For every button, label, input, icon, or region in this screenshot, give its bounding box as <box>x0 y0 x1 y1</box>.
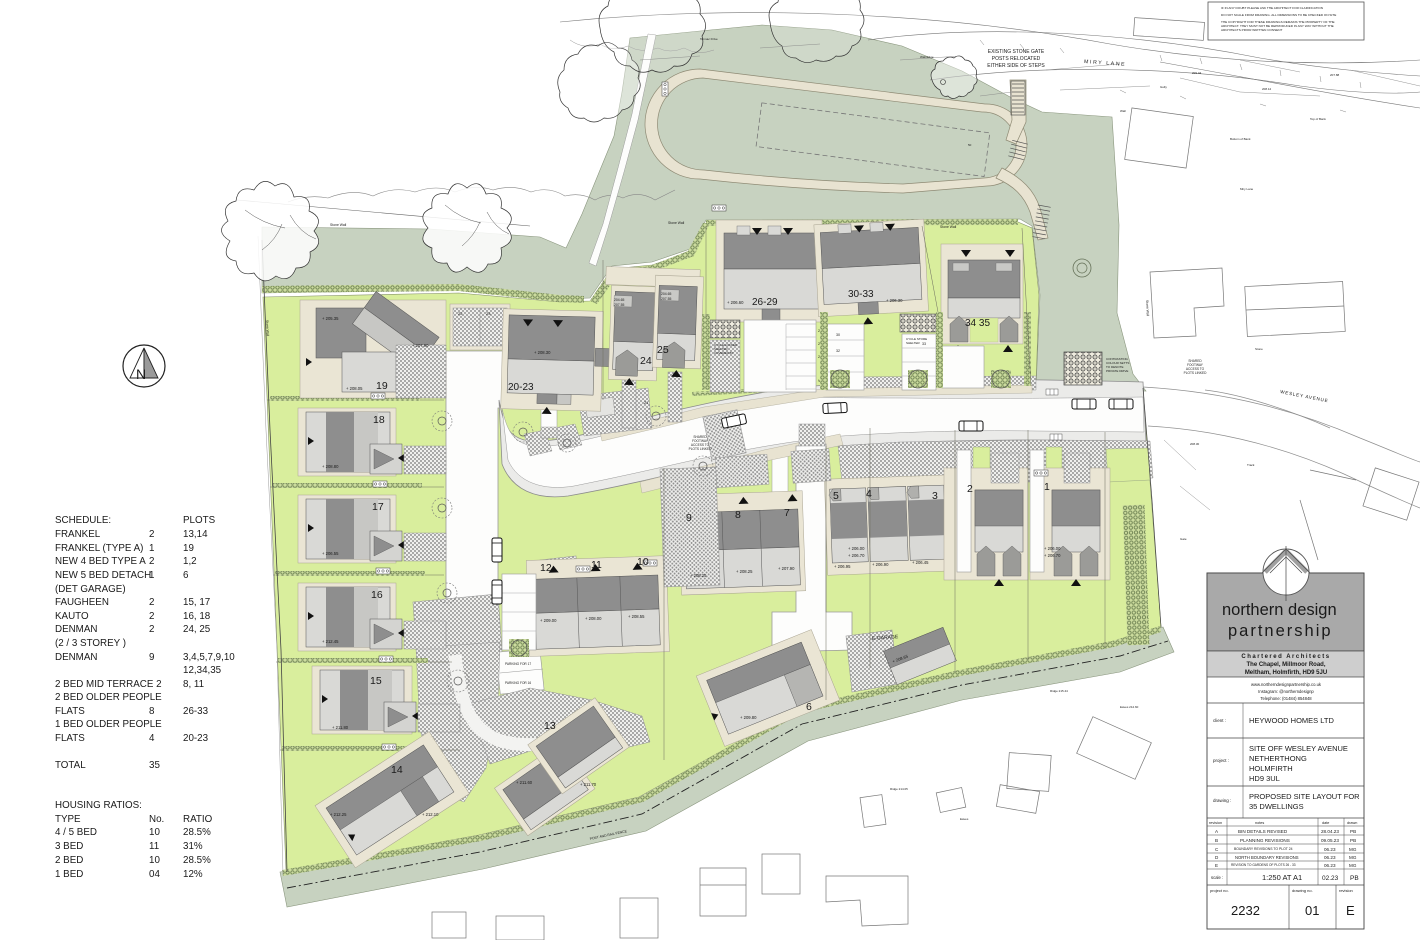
svg-text:NEW 5 BED DETACH: NEW 5 BED DETACH <box>55 570 151 581</box>
svg-text:1 BED: 1 BED <box>55 869 83 880</box>
svg-text:28.5%: 28.5% <box>183 855 211 866</box>
svg-text:+ 206.45: + 206.45 <box>912 560 929 565</box>
svg-text:Ridge 215.44: Ridge 215.44 <box>1050 689 1068 693</box>
svg-text:Gate: Gate <box>1180 537 1187 541</box>
svg-text:26-33: 26-33 <box>183 706 209 717</box>
svg-text:+ 209.00: + 209.00 <box>540 618 557 623</box>
svg-text:DENMAN: DENMAN <box>55 624 97 635</box>
svg-text:The Chapel, Millmoor Road,: The Chapel, Millmoor Road, <box>1246 662 1325 668</box>
svg-text:01: 01 <box>1305 903 1319 918</box>
svg-text:RATIO: RATIO <box>183 814 213 825</box>
svg-text:Stone Wall: Stone Wall <box>940 225 957 229</box>
svg-text:20-23: 20-23 <box>508 382 534 393</box>
svg-text:FLATS: FLATS <box>55 733 85 744</box>
svg-text:3,4,5,7,9,10: 3,4,5,7,9,10 <box>183 652 235 663</box>
svg-text:207.55: 207.55 <box>661 297 671 301</box>
svg-text:4 / 5 BED: 4 / 5 BED <box>55 827 97 838</box>
svg-text:13: 13 <box>544 720 556 732</box>
svg-text:No.: No. <box>149 814 164 825</box>
svg-text:PRIVATE DRIVE: PRIVATE DRIVE <box>1106 369 1128 373</box>
svg-text:30-33: 30-33 <box>848 289 874 300</box>
svg-text:204.65: 204.65 <box>661 292 671 296</box>
svg-text:HD9 3UL: HD9 3UL <box>1249 774 1280 783</box>
svg-text:PLOTS LINKED: PLOTS LINKED <box>1184 371 1208 375</box>
svg-text:Stone Wall: Stone Wall <box>668 221 685 225</box>
svg-text:PB: PB <box>1350 829 1356 834</box>
svg-text:28.04.23: 28.04.23 <box>1321 829 1339 834</box>
svg-text:+ 205.35: + 205.35 <box>322 316 339 321</box>
svg-text:10: 10 <box>149 855 160 866</box>
svg-text:PB: PB <box>1350 875 1359 882</box>
svg-text:partnership: partnership <box>1228 622 1333 640</box>
svg-text:+ 208.25: + 208.25 <box>690 573 707 578</box>
svg-text:HEYWOOD HOMES LTD: HEYWOOD HOMES LTD <box>1249 716 1334 725</box>
svg-text:BIN DETAILS REVISED: BIN DETAILS REVISED <box>1238 829 1288 834</box>
svg-text:12%: 12% <box>183 869 203 880</box>
svg-text:Meltham, Holmfirth, HD9 5JU: Meltham, Holmfirth, HD9 5JU <box>1245 670 1327 676</box>
svg-text:+ 212.10: + 212.10 <box>422 812 439 817</box>
svg-text:PB: PB <box>1350 838 1356 843</box>
svg-text:1:250 AT A1: 1:250 AT A1 <box>1262 873 1302 882</box>
svg-text:4: 4 <box>149 733 155 744</box>
svg-text:BOUNDARY REVISIONS TO PLOT 24: BOUNDARY REVISIONS TO PLOT 24 <box>1234 847 1293 851</box>
svg-text:revision: revision <box>1339 888 1353 893</box>
svg-text:10: 10 <box>637 556 649 568</box>
svg-text:KAUTO: KAUTO <box>55 611 89 622</box>
svg-text:35: 35 <box>149 760 160 771</box>
svg-text:2 BED: 2 BED <box>55 855 83 866</box>
svg-text:EXISTING STONE GATE: EXISTING STONE GATE <box>988 49 1045 55</box>
svg-text:19: 19 <box>376 380 388 392</box>
svg-text:8: 8 <box>149 706 155 717</box>
svg-text:+ 206.00: + 206.00 <box>1044 546 1061 551</box>
svg-text:21: 21 <box>644 400 649 405</box>
svg-text:+ 206.60: + 206.60 <box>727 300 744 305</box>
svg-text:PLANNING REVISIONS: PLANNING REVISIONS <box>1240 838 1290 843</box>
svg-text:30: 30 <box>836 333 840 337</box>
svg-text:+ 206.70: + 206.70 <box>1044 553 1061 558</box>
svg-text:www.northerndesignpartnership.: www.northerndesignpartnership.co.uk <box>1251 682 1322 687</box>
svg-text:TOTAL: TOTAL <box>55 760 86 771</box>
svg-text:+ 207.90: + 207.90 <box>412 343 429 348</box>
svg-text:31%: 31% <box>183 841 203 852</box>
svg-text:12: 12 <box>540 562 552 574</box>
svg-text:11: 11 <box>591 559 602 571</box>
svg-text:Chartered Architects: Chartered Architects <box>1241 654 1330 660</box>
svg-text:9: 9 <box>149 652 154 663</box>
svg-text:Gully: Gully <box>1160 85 1167 89</box>
svg-text:+ 208.00: + 208.00 <box>585 616 602 621</box>
svg-text:drawing no.: drawing no. <box>1292 888 1313 893</box>
svg-text:Wall Edge: Wall Edge <box>920 55 934 59</box>
svg-text:+ 208.55: + 208.55 <box>628 614 645 619</box>
svg-text:3: 3 <box>932 490 938 502</box>
svg-text:+ 211.70: + 211.70 <box>580 782 597 787</box>
svg-text:2: 2 <box>149 556 154 567</box>
svg-text:Track: Track <box>1247 463 1255 467</box>
svg-text:28.5%: 28.5% <box>183 827 211 838</box>
svg-text:+ 206.90: + 206.90 <box>872 562 889 567</box>
svg-text:2: 2 <box>967 483 973 495</box>
svg-text:Eaves: Eaves <box>960 817 969 821</box>
svg-text:32: 32 <box>836 349 840 353</box>
svg-text:14: 14 <box>391 764 403 776</box>
svg-text:15: 15 <box>370 675 382 687</box>
svg-text:+ 206.55: + 206.55 <box>322 551 339 556</box>
svg-text:+ 212.45: + 212.45 <box>322 639 339 644</box>
svg-text:Stone: Stone <box>1255 347 1263 351</box>
svg-text:11: 11 <box>149 841 159 852</box>
svg-text:PARKING FOR 16: PARKING FOR 16 <box>505 681 531 685</box>
svg-text:MG: MG <box>1349 855 1357 860</box>
svg-text:1: 1 <box>149 570 154 581</box>
svg-text:06.23: 06.23 <box>1324 847 1336 852</box>
svg-text:COVERED BY: COVERED BY <box>714 351 734 355</box>
svg-text:+ 208.30: + 208.30 <box>534 350 551 355</box>
svg-text:6: 6 <box>183 570 189 581</box>
svg-text:DENMAN: DENMAN <box>55 652 97 663</box>
svg-text:HOLMFIRTH: HOLMFIRTH <box>1249 764 1293 773</box>
svg-text:2: 2 <box>149 624 154 635</box>
svg-text:+ 211.80: + 211.80 <box>332 725 349 730</box>
svg-text:1: 1 <box>1044 481 1050 493</box>
svg-text:23: 23 <box>486 311 491 316</box>
svg-text:207.55: 207.55 <box>614 303 624 307</box>
svg-text:Telephone: (01484) 854848: Telephone: (01484) 854848 <box>1260 696 1312 701</box>
svg-text:9: 9 <box>686 512 692 524</box>
svg-text:+ 206.95: + 206.95 <box>834 564 851 569</box>
svg-text:NORTH BOUNDARY REVISIONS: NORTH BOUNDARY REVISIONS <box>1235 855 1299 860</box>
svg-text:FRANKEL (TYPE A): FRANKEL (TYPE A) <box>55 543 143 554</box>
svg-text:6: 6 <box>806 701 812 713</box>
svg-text:2: 2 <box>149 611 154 622</box>
svg-text:06.23: 06.23 <box>1324 855 1336 860</box>
svg-text:204.65: 204.65 <box>614 298 624 302</box>
svg-text:+ 211.60: + 211.60 <box>516 780 533 785</box>
svg-text:scale :: scale : <box>1211 875 1223 880</box>
svg-text:7: 7 <box>784 507 790 519</box>
svg-text:FRANKEL: FRANKEL <box>55 529 101 540</box>
svg-text:19: 19 <box>183 543 194 554</box>
svg-text:Instagram: @northerndesignp: Instagram: @northerndesignp <box>1258 689 1314 694</box>
svg-text:4: 4 <box>866 488 872 500</box>
svg-text:209.44: 209.44 <box>1192 71 1202 75</box>
svg-text:PLOTS LINKED: PLOTS LINKED <box>689 447 713 451</box>
svg-text:Top of Bank: Top of Bank <box>1310 117 1326 121</box>
svg-text:+ 209.80: + 209.80 <box>740 715 757 720</box>
svg-text:2 BED MID TERRACE 2: 2 BED MID TERRACE 2 <box>55 679 162 690</box>
svg-text:34 35: 34 35 <box>965 318 990 329</box>
svg-text:MG: MG <box>1349 847 1357 852</box>
svg-text:+ 208.25: + 208.25 <box>736 569 753 574</box>
svg-text:Miry Lane: Miry Lane <box>1240 187 1254 191</box>
svg-text:project no.: project no. <box>1210 888 1229 893</box>
svg-text:12,34,35: 12,34,35 <box>183 665 222 676</box>
svg-text:33: 33 <box>922 342 926 346</box>
svg-text:PARKING FOR 17: PARKING FOR 17 <box>505 662 531 666</box>
svg-text:EITHER SIDE OF STEPS: EITHER SIDE OF STEPS <box>987 63 1045 69</box>
svg-text:drawn: drawn <box>1347 821 1357 825</box>
svg-text:09.05.23: 09.05.23 <box>1321 838 1339 843</box>
svg-text:SHELTER: SHELTER <box>906 341 920 345</box>
svg-text:revision: revision <box>1209 821 1222 825</box>
svg-text:(DET GARAGE): (DET GARAGE) <box>55 584 126 595</box>
svg-text:+ 206.70: + 206.70 <box>848 553 865 558</box>
svg-text:+ 212.25: + 212.25 <box>330 812 347 817</box>
svg-text:project :: project : <box>1213 758 1229 763</box>
svg-text:2232: 2232 <box>1231 903 1260 918</box>
svg-text:26-29: 26-29 <box>752 297 778 308</box>
svg-text:1,2: 1,2 <box>183 556 197 567</box>
svg-text:2: 2 <box>149 529 154 540</box>
svg-text:TYPE: TYPE <box>55 814 81 825</box>
svg-text:(2 / 3 STOREY ): (2 / 3 STOREY ) <box>55 638 126 649</box>
svg-text:client :: client : <box>1213 718 1226 723</box>
svg-text:+ 206.30: + 206.30 <box>886 298 903 303</box>
svg-text:IF IN ANY DOUBT PLEASE ASK THE: IF IN ANY DOUBT PLEASE ASK THE ARCHITECT… <box>1221 6 1323 10</box>
svg-text:22: 22 <box>458 311 463 316</box>
svg-text:PLOTS: PLOTS <box>183 515 216 526</box>
svg-text:+ 208.80: + 208.80 <box>322 464 339 469</box>
svg-text:drawing :: drawing : <box>1213 798 1231 803</box>
svg-text:REVISION TO GARDENS OF PLOTS 2: REVISION TO GARDENS OF PLOTS 26 - 33 <box>1231 863 1296 867</box>
svg-text:20-23: 20-23 <box>183 733 209 744</box>
svg-text:PROPOSED SITE LAYOUT FOR: PROPOSED SITE LAYOUT FOR <box>1249 792 1360 801</box>
svg-text:ARCHITECTS PRIOR WRITTEN CONSE: ARCHITECTS PRIOR WRITTEN CONSENT <box>1221 28 1282 32</box>
svg-text:13,14: 13,14 <box>183 529 208 540</box>
svg-text:1 BED OLDER PEOPLE: 1 BED OLDER PEOPLE <box>55 719 162 730</box>
svg-text:FLATS: FLATS <box>55 706 85 717</box>
svg-text:24, 25: 24, 25 <box>183 624 211 635</box>
svg-text:35 DWELLINGS: 35 DWELLINGS <box>1249 802 1304 811</box>
svg-text:NEW 4 BED TYPE A: NEW 4 BED TYPE A <box>55 556 146 567</box>
svg-text:POSTS RELOCATED: POSTS RELOCATED <box>992 56 1041 62</box>
svg-text:17: 17 <box>372 501 384 513</box>
svg-text:E: E <box>1346 903 1355 918</box>
svg-text:208.12: 208.12 <box>1262 87 1272 91</box>
svg-text:2: 2 <box>149 597 154 608</box>
svg-text:5: 5 <box>833 490 839 502</box>
svg-text:+ 207.90: + 207.90 <box>778 566 795 571</box>
svg-text:18: 18 <box>373 414 385 426</box>
svg-text:HOUSING RATIOS:: HOUSING RATIOS: <box>55 800 142 811</box>
svg-text:Bottom of Bank: Bottom of Bank <box>1230 137 1251 141</box>
svg-text:3 BED: 3 BED <box>55 841 83 852</box>
svg-text:Ridge 214.05: Ridge 214.05 <box>890 787 908 791</box>
svg-text:10: 10 <box>149 827 160 838</box>
svg-text:notes: notes <box>1255 821 1264 825</box>
svg-text:MG: MG <box>1349 863 1357 868</box>
svg-text:northern design: northern design <box>1222 601 1337 619</box>
svg-text:1: 1 <box>149 543 154 554</box>
svg-text:SCHEDULE:: SCHEDULE: <box>55 515 111 526</box>
svg-text:Tarmac Drive: Tarmac Drive <box>700 37 718 41</box>
svg-text:FAUGHEEN: FAUGHEEN <box>55 597 109 608</box>
svg-text:15, 17: 15, 17 <box>183 597 210 608</box>
svg-text:+ 206.00: + 206.00 <box>848 546 865 551</box>
svg-text:24: 24 <box>640 355 652 367</box>
svg-text:8, 11: 8, 11 <box>183 679 204 690</box>
svg-text:02.23: 02.23 <box>1322 875 1339 882</box>
svg-text:+ 208.05: + 208.05 <box>346 386 363 391</box>
svg-text:8: 8 <box>735 509 741 521</box>
svg-text:SITE OFF WESLEY AVENUE: SITE OFF WESLEY AVENUE <box>1249 744 1348 753</box>
svg-text:2 BED OLDER PEOPLE: 2 BED OLDER PEOPLE <box>55 692 162 703</box>
svg-text:E: E <box>1215 863 1218 868</box>
svg-text:NETHERTHONG: NETHERTHONG <box>1249 754 1307 763</box>
svg-text:Stone Wall: Stone Wall <box>330 223 347 227</box>
svg-text:50: 50 <box>968 143 972 147</box>
svg-text:date: date <box>1322 821 1329 825</box>
svg-text:16, 18: 16, 18 <box>183 611 211 622</box>
svg-text:Wall: Wall <box>1120 109 1126 113</box>
svg-text:06.23: 06.23 <box>1324 863 1336 868</box>
svg-text:B: B <box>1215 838 1218 843</box>
svg-text:16: 16 <box>371 589 383 601</box>
svg-text:N: N <box>136 366 146 382</box>
svg-text:208.30: 208.30 <box>1190 442 1200 446</box>
svg-text:Eaves 212.60: Eaves 212.60 <box>1120 705 1139 709</box>
svg-text:DO NOT SCALE FROM DRAWING. ALL: DO NOT SCALE FROM DRAWING. ALL DIMENSION… <box>1221 13 1336 17</box>
svg-text:04: 04 <box>149 869 160 880</box>
svg-text:207.88: 207.88 <box>1330 73 1340 77</box>
svg-text:25: 25 <box>657 344 669 356</box>
